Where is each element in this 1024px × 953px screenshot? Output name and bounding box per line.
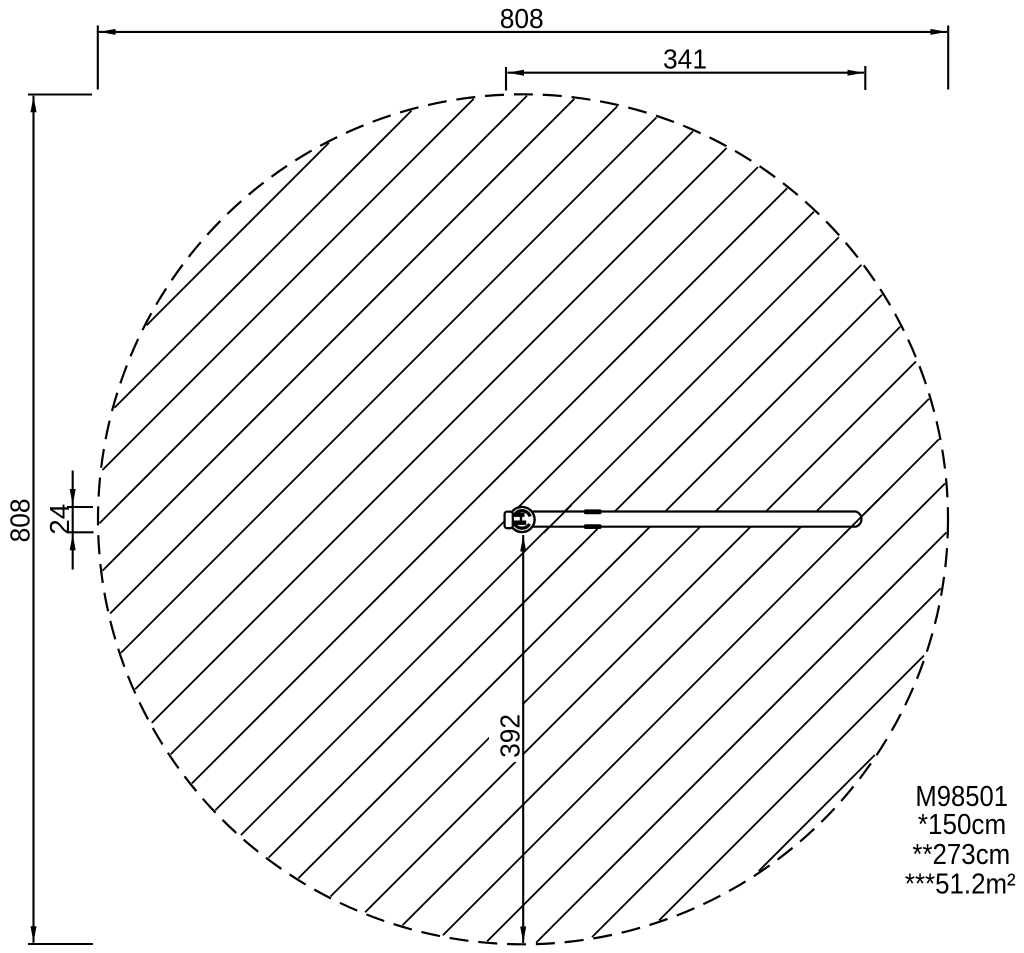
svg-text:808: 808 [500,3,544,34]
svg-text:***51.2m²: ***51.2m² [905,869,1016,901]
svg-text:*150cm: *150cm [918,809,1006,841]
svg-text:808: 808 [5,498,36,542]
svg-text:341: 341 [663,44,707,75]
svg-text:**273cm: **273cm [912,839,1010,871]
svg-text:392: 392 [495,714,526,758]
svg-text:24: 24 [44,504,75,535]
